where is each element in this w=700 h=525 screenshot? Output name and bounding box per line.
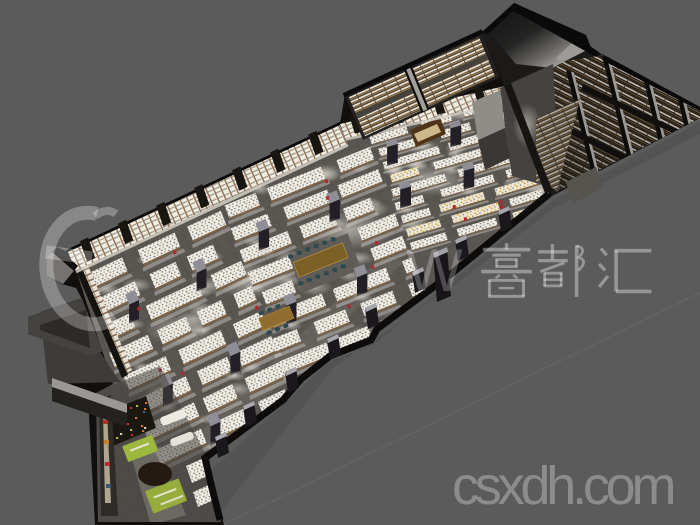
svg-text:csxdh.com: csxdh.com xyxy=(452,456,673,516)
svg-text:W: W xyxy=(406,237,463,304)
